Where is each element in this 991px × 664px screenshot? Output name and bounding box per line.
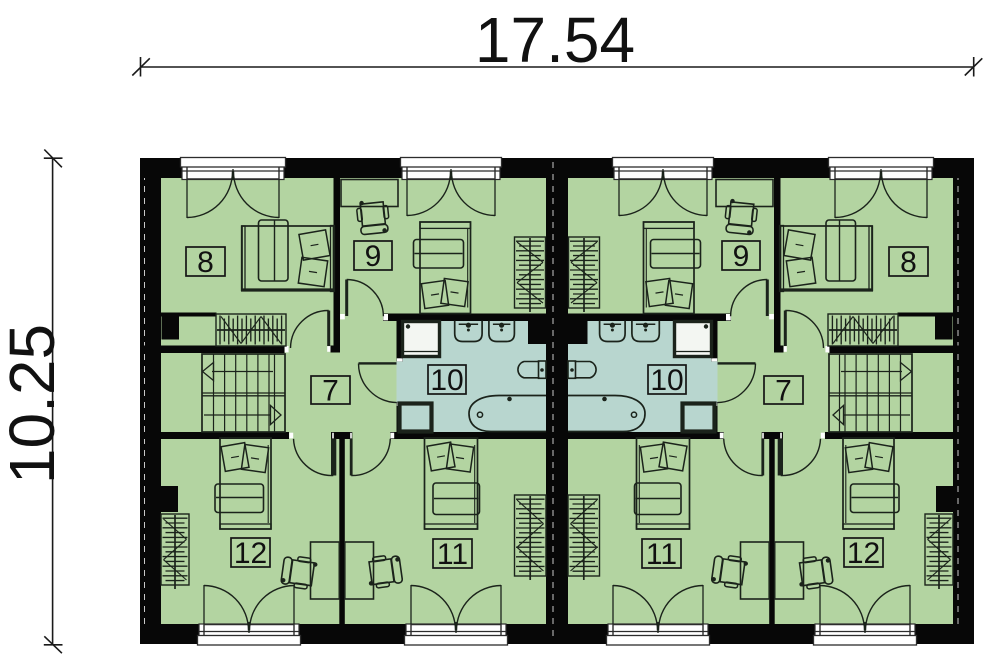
svg-text:11: 11 xyxy=(437,538,468,571)
svg-text:9: 9 xyxy=(733,240,750,273)
svg-text:9: 9 xyxy=(365,240,382,273)
svg-text:17.54: 17.54 xyxy=(475,4,635,76)
svg-text:7: 7 xyxy=(775,375,792,408)
svg-text:7: 7 xyxy=(322,375,339,408)
svg-text:11: 11 xyxy=(646,538,677,571)
svg-text:12: 12 xyxy=(847,537,880,570)
svg-text:10.25: 10.25 xyxy=(0,324,68,484)
svg-text:8: 8 xyxy=(197,246,214,279)
svg-text:10: 10 xyxy=(430,364,463,397)
svg-text:8: 8 xyxy=(900,246,917,279)
svg-text:12: 12 xyxy=(234,537,267,570)
svg-text:10: 10 xyxy=(650,364,683,397)
